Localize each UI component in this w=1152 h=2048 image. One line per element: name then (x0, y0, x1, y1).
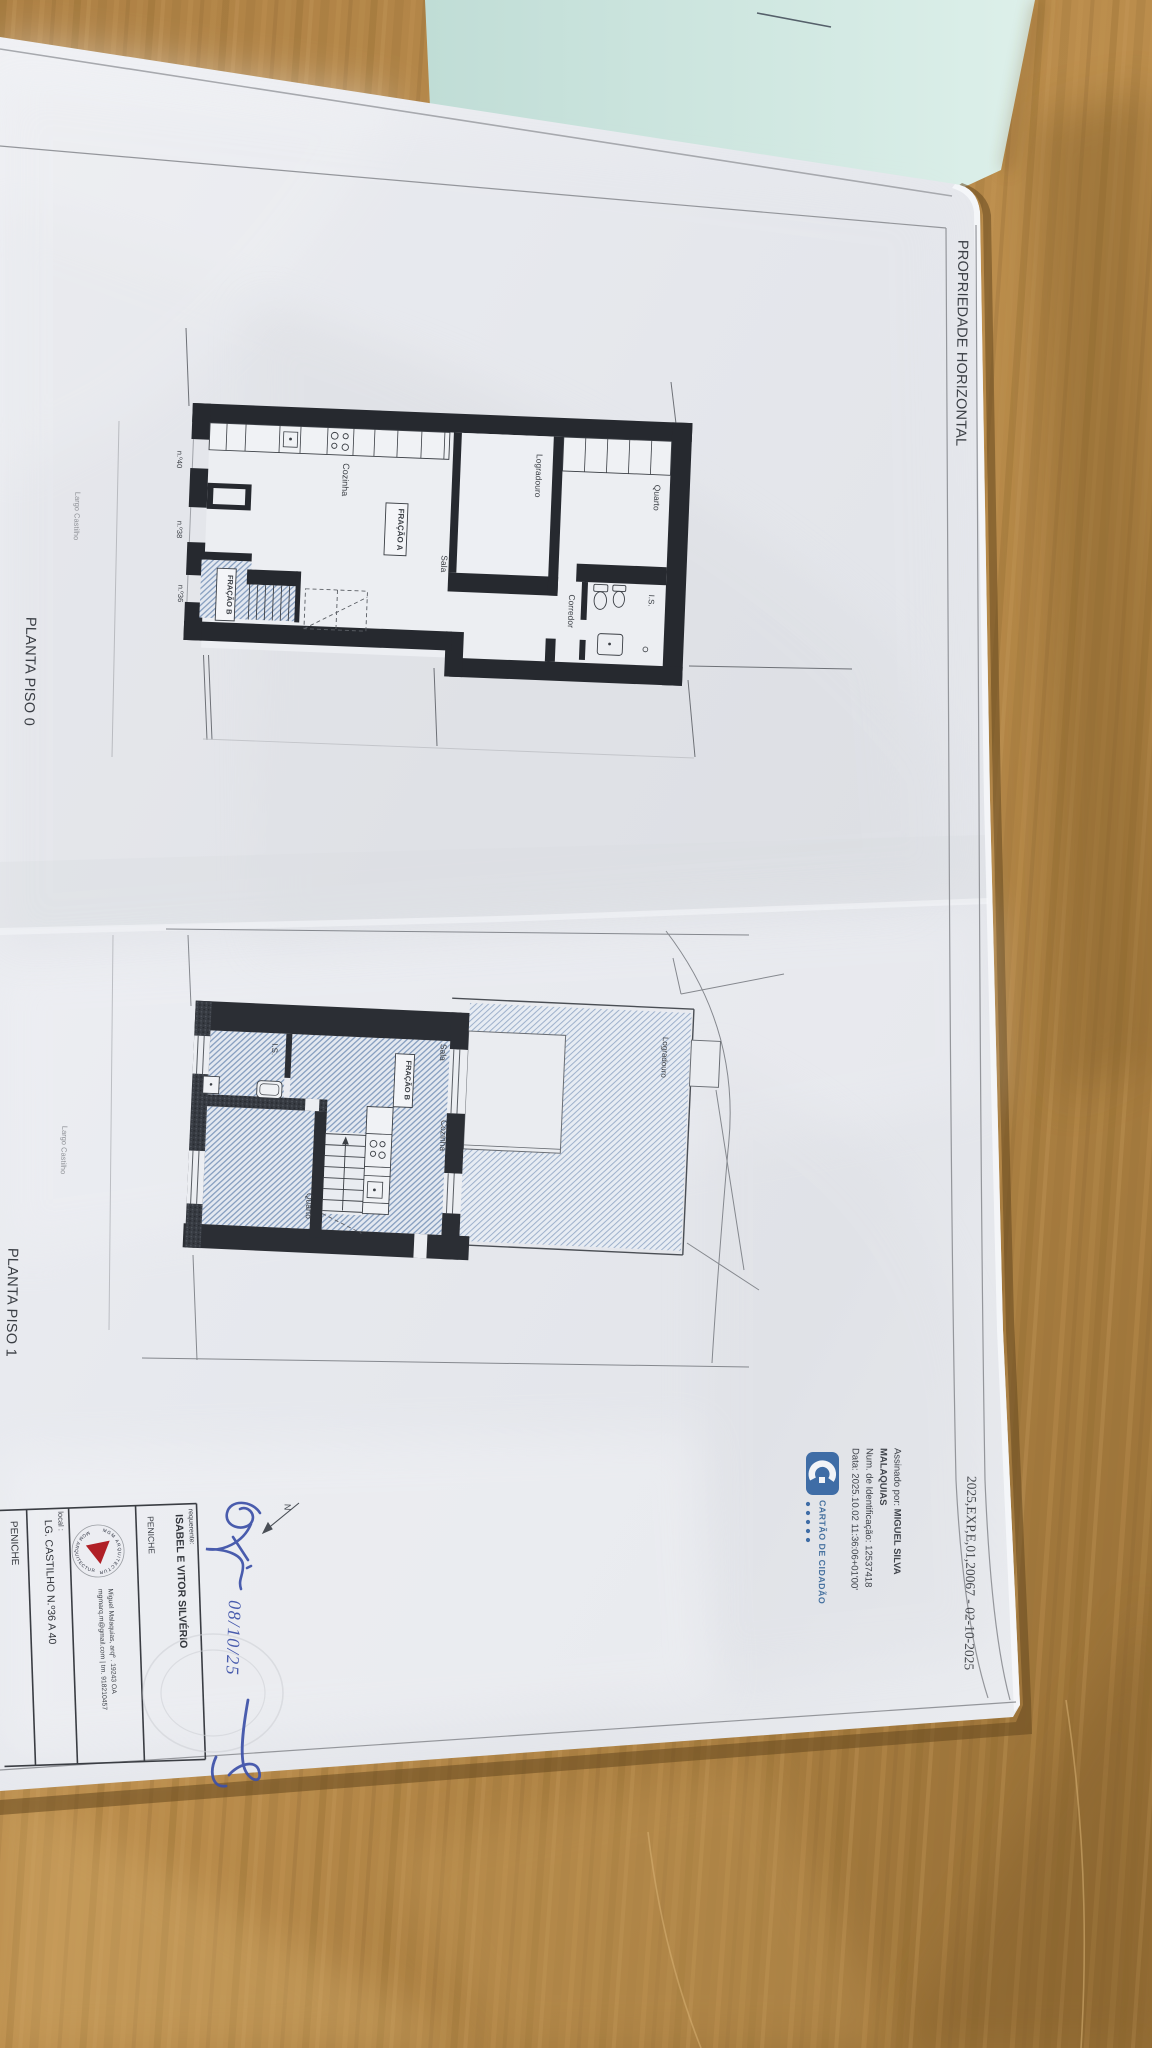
svg-text:N: N (282, 1504, 292, 1511)
svg-text:MALAQUIAS: MALAQUIAS (877, 1448, 889, 1506)
svg-text:PROPRIEDADE HORIZONTAL: PROPRIEDADE HORIZONTAL (952, 240, 970, 447)
svg-text:Num. de Identificação: 1253741: Num. de Identificação: 12537418 (862, 1448, 874, 1588)
svg-text:Cozinha: Cozinha (340, 463, 351, 496)
svg-text:PLANTA PISO 0: PLANTA PISO 0 (21, 617, 39, 726)
svg-text:PENICHE: PENICHE (145, 1516, 156, 1554)
svg-text:local :: local : (56, 1511, 66, 1531)
svg-text:Corredor: Corredor (566, 594, 577, 628)
svg-text:Sala: Sala (438, 1044, 449, 1062)
svg-text:I.S.: I.S. (647, 594, 656, 606)
svg-text:Logradouro: Logradouro (659, 1037, 670, 1079)
svg-text:requerente:: requerente: (187, 1509, 195, 1545)
svg-text:n.º38: n.º38 (175, 521, 185, 539)
svg-text:FRAÇÃO A: FRAÇÃO A (395, 508, 406, 550)
svg-text:PLANTA PISO 1: PLANTA PISO 1 (3, 1248, 21, 1357)
svg-text:Largo Castilho: Largo Castilho (59, 1126, 70, 1175)
svg-text:Largo Castilho: Largo Castilho (72, 492, 83, 541)
svg-text:Assinado por: MIGUEL SILVA: Assinado por: MIGUEL SILVA (890, 1448, 902, 1575)
svg-text:CARTÃO DE CIDADÃO: CARTÃO DE CIDADÃO (817, 1500, 828, 1604)
svg-text:2025,EXP,E,01,20067 - 02-10-20: 2025,EXP,E,01,20067 - 02-10-2025 (962, 1476, 980, 1671)
svg-text:Quarto: Quarto (652, 485, 663, 512)
svg-text:Quarto: Quarto (304, 1193, 315, 1220)
svg-text:n.º36: n.º36 (176, 585, 186, 603)
svg-text:PENICHE: PENICHE (8, 1521, 21, 1566)
svg-text:Sala: Sala (439, 555, 450, 573)
svg-text:Cozinha: Cozinha (438, 1120, 449, 1152)
svg-text:FRAÇÃO B: FRAÇÃO B (403, 1060, 414, 1101)
svg-text:I.S.: I.S. (270, 1043, 280, 1055)
svg-text:Data: 2025.10.02 11:36:06+01'0: Data: 2025.10.02 11:36:06+01'00' (848, 1448, 860, 1590)
svg-text:FRAÇÃO B: FRAÇÃO B (224, 575, 235, 615)
svg-text:Logradouro: Logradouro (533, 454, 545, 498)
svg-text:n.º40: n.º40 (175, 451, 185, 469)
svg-text:08/10/25: 08/10/25 (222, 1600, 245, 1677)
